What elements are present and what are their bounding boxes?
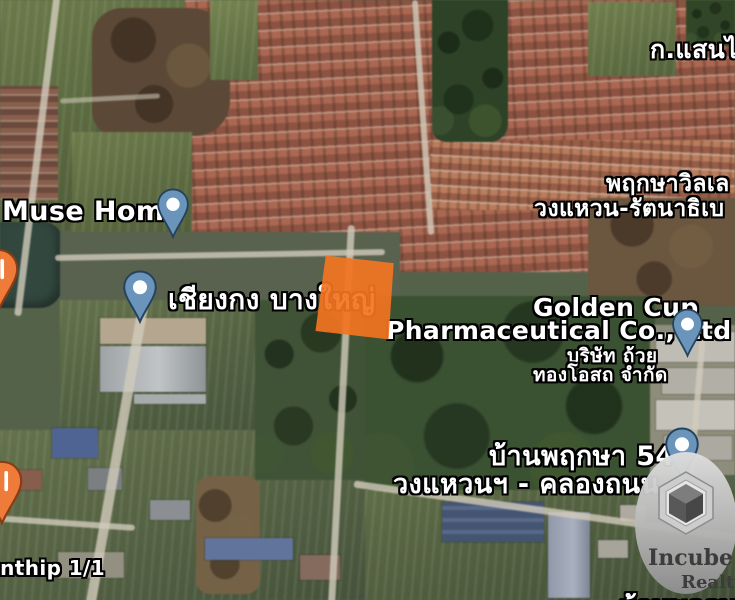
place-pin-icon — [671, 306, 704, 360]
place-pin-icon — [156, 185, 190, 242]
se-building-tall — [548, 512, 590, 598]
place-pin-muse-home[interactable] — [156, 185, 190, 242]
highlighted-land-plot[interactable] — [312, 251, 398, 344]
map-label-baan-pruksa54-sub[interactable]: วงแหวนฯ - คลองถนน — [393, 462, 659, 505]
se-building-small-1 — [598, 540, 628, 558]
restaurant-pin-icon — [0, 460, 26, 526]
place-pin-golden-cup[interactable] — [671, 306, 704, 360]
map-region-housing-w — [0, 86, 58, 200]
incube-realty-watermark: Incube Realty — [633, 450, 735, 600]
village-building-blue-2 — [205, 538, 293, 560]
food-pin-2[interactable] — [0, 460, 26, 526]
watermark-brand-line1: Incube — [648, 545, 733, 571]
village-building-blue-1 — [52, 428, 98, 458]
place-pin-icon — [122, 266, 158, 328]
food-pin-1[interactable] — [0, 248, 22, 314]
factory-building-2 — [100, 346, 206, 392]
factory-building-3 — [134, 394, 206, 404]
map-label-ksaen[interactable]: ก.แสนไ — [650, 30, 735, 70]
village-building-grey-2 — [150, 500, 190, 520]
place-pin-chiang-kong[interactable] — [122, 266, 158, 328]
map-region-trees-pond — [432, 0, 508, 142]
map-label-golden-cup-thai-line2[interactable]: ทองโอสถ จำกัด — [533, 360, 668, 390]
restaurant-pin-icon — [0, 248, 22, 314]
map-region-field-n — [210, 0, 258, 80]
map-region-dirt-sw — [196, 476, 260, 594]
satellite-map-screenshot: ก.แสนไ Muse Home เชียงกง บางใหญ่ พฤกษาวิ… — [0, 0, 735, 600]
map-label-monthip[interactable]: onthip 1/1 — [0, 556, 105, 580]
map-label-pruksa-village-line2[interactable]: วงแหวน-รัตนาธิเบ — [534, 191, 724, 227]
watermark-brand-line2: Realty — [681, 572, 735, 593]
